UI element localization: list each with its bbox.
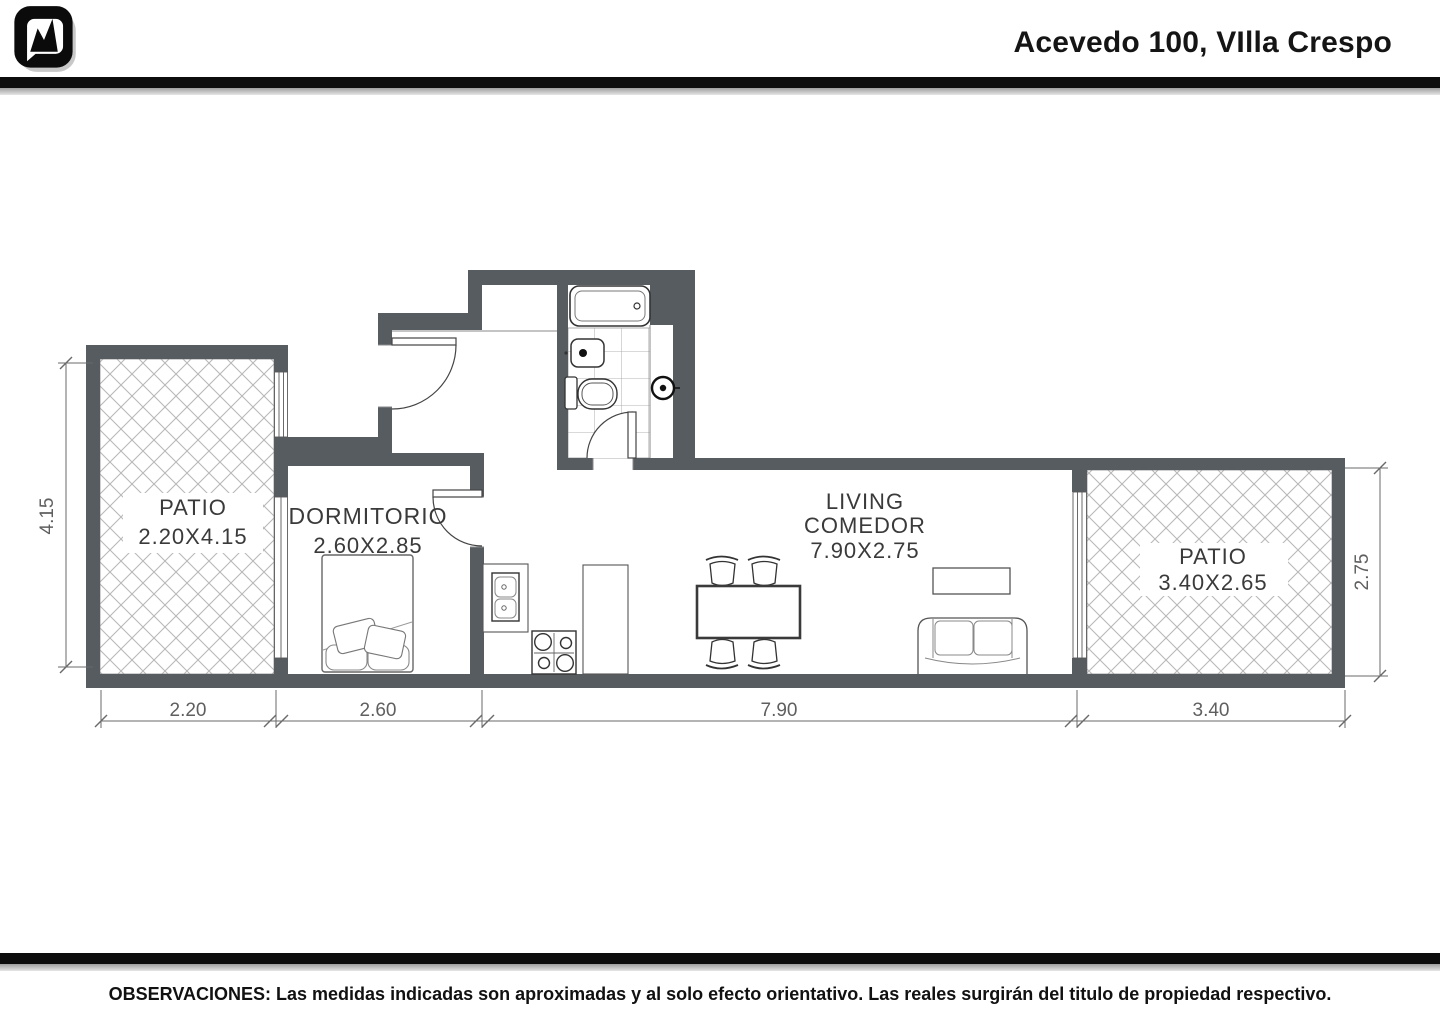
fridge-cabinet [583,565,628,674]
room-label-comedor: COMEDOR [804,513,926,538]
dormitorio-window-icon [275,497,288,658]
chair-icon [748,640,780,669]
chair-icon [748,557,780,586]
dim-bottom-4: 3.40 [1193,700,1230,721]
dim-bottom-3: 7.90 [761,700,798,721]
room-label-living: LIVING [826,489,904,514]
dining-table-icon [697,586,800,638]
observations-text: OBSERVACIONES: Las medidas indicadas son… [0,984,1440,1005]
toilet-icon [565,377,617,409]
room-dims-patio-right: 3.40X2.65 [1158,570,1267,595]
dim-right: 2.75 [1352,554,1373,591]
chair-icon [706,640,738,669]
room-dims-living: 7.90X2.75 [810,538,919,563]
bed-icon [322,555,413,672]
room-label-patio-left: PATIO [159,495,227,520]
living-patio-window-icon [1073,492,1087,658]
room-label-patio-right: PATIO [1179,544,1247,569]
dim-bottom-2: 2.60 [360,700,397,721]
sofa-icon [918,618,1027,674]
chair-icon [706,557,738,586]
kitchen-sink-icon [492,573,519,621]
room-dims-dormitorio: 2.60X2.85 [313,533,422,558]
floorplan-drawing: 2.20 2.60 7.90 3.40 4.15 2.75 PATIO 2.20… [0,0,1440,1015]
patio-left-window-icon [275,372,288,437]
dining-set [697,557,800,669]
bathtub-icon [570,286,650,326]
room-dims-patio-left: 2.20X4.15 [138,524,247,549]
dim-left: 4.15 [37,498,58,535]
coffee-table-icon [933,568,1010,594]
floorplan-page: Acevedo 100, VIlla Crespo [0,0,1440,1015]
room-label-dormitorio: DORMITORIO [288,503,447,529]
footer-rule-shadow [0,964,1440,971]
entry-door-icon [392,338,456,409]
stove-icon [532,631,576,674]
dim-bottom-1: 2.20 [170,700,207,721]
kitchen-fixtures [483,564,628,674]
footer-rule [0,953,1440,964]
